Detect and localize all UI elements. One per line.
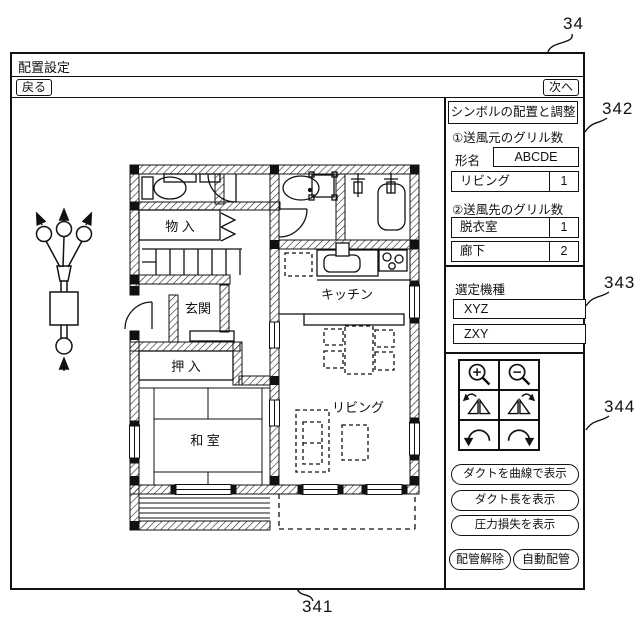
washing-machine bbox=[309, 172, 337, 200]
zoom-out-icon bbox=[500, 360, 538, 390]
window-title: 配置設定 bbox=[18, 57, 70, 76]
room-label-japanese-room: 和 室 bbox=[190, 433, 220, 448]
room-label-storage: 物 入 bbox=[165, 219, 195, 234]
dest-room-name: 廊下 bbox=[452, 242, 549, 261]
flip-right-button[interactable] bbox=[499, 390, 539, 420]
entrance-door-arc bbox=[125, 302, 152, 329]
panel-divider bbox=[446, 265, 583, 267]
dest-grill-row[interactable]: 廊下 2 bbox=[451, 241, 579, 262]
selected-models-title: 選定機種 bbox=[455, 279, 505, 298]
model-option[interactable]: ZXY bbox=[453, 324, 586, 344]
rotate-cw-icon bbox=[500, 420, 538, 450]
zoom-in-button[interactable] bbox=[459, 360, 499, 390]
room-label-closet: 押 入 bbox=[171, 359, 201, 374]
model-name-field[interactable]: ABCDE bbox=[493, 147, 579, 167]
stairs bbox=[142, 249, 242, 275]
terrace-dashed bbox=[279, 494, 415, 529]
top-cabinet bbox=[164, 174, 196, 182]
source-grill-row[interactable]: リビング 1 bbox=[451, 171, 579, 192]
release-piping-button[interactable]: 配管解除 bbox=[449, 549, 511, 570]
source-grills-title: ①送風元のグリル数 bbox=[452, 127, 563, 146]
toolbar: 戻る 次へ bbox=[12, 78, 583, 98]
rotate-ccw-button[interactable] bbox=[459, 420, 499, 450]
dest-grills-title: ②送風先のグリル数 bbox=[452, 199, 563, 218]
auto-piping-button[interactable]: 自動配管 bbox=[513, 549, 579, 570]
ref-label-341: 341 bbox=[302, 597, 333, 617]
symbol-panel: シンボルの配置と調整 ①送風元のグリル数 形名 ABCDE リビング 1 ②送風… bbox=[444, 98, 583, 588]
stove bbox=[379, 250, 407, 271]
view-tool-grid bbox=[458, 359, 540, 451]
washroom-door-arc bbox=[279, 209, 307, 237]
panel-divider bbox=[446, 352, 583, 354]
show-duct-length-button[interactable]: ダクト長を表示 bbox=[451, 490, 579, 511]
title-bar: 配置設定 bbox=[12, 54, 583, 77]
rotate-ccw-icon bbox=[460, 420, 498, 450]
zoom-out-button[interactable] bbox=[499, 360, 539, 390]
placement-settings-window: 配置設定 戻る 次へ bbox=[10, 52, 585, 590]
zoom-in-icon bbox=[460, 360, 498, 390]
ref-label-343: 343 bbox=[604, 273, 635, 293]
flip-horizontal-cw-icon bbox=[500, 390, 538, 420]
source-grill-count[interactable]: 1 bbox=[549, 172, 578, 191]
dining-set-dashed bbox=[324, 326, 394, 374]
flip-left-button[interactable] bbox=[459, 390, 499, 420]
model-name-label: 形名 bbox=[455, 150, 480, 169]
back-button[interactable]: 戻る bbox=[16, 79, 52, 96]
room-label-kitchen: キッチン bbox=[321, 287, 373, 302]
dest-room-name: 脱衣室 bbox=[452, 218, 549, 237]
floorplan-canvas[interactable]: 物 入 玄関 押 入 和 室 キッチン リビング bbox=[13, 98, 445, 587]
duct-symbol[interactable] bbox=[37, 210, 92, 371]
dest-grill-row[interactable]: 脱衣室 1 bbox=[451, 217, 579, 238]
dest-grill-count[interactable]: 1 bbox=[549, 218, 578, 237]
dest-grill-count[interactable]: 2 bbox=[549, 242, 578, 261]
room-label-living: リビング bbox=[332, 400, 384, 415]
refrigerator-dashed bbox=[285, 253, 312, 276]
panel-header: シンボルの配置と調整 bbox=[448, 101, 578, 124]
kitchen-counter bbox=[279, 314, 404, 325]
bathtub bbox=[351, 173, 405, 230]
ref-label-34: 34 bbox=[563, 14, 584, 34]
show-duct-curve-button[interactable]: ダクトを曲線で表示 bbox=[451, 464, 579, 485]
flip-horizontal-ccw-icon bbox=[460, 390, 498, 420]
model-option[interactable]: XYZ bbox=[453, 299, 586, 319]
ref-label-342: 342 bbox=[602, 99, 633, 119]
next-button[interactable]: 次へ bbox=[543, 79, 579, 96]
ref-label-344: 344 bbox=[604, 397, 635, 417]
veranda-lines bbox=[139, 498, 270, 518]
rotate-cw-button[interactable] bbox=[499, 420, 539, 450]
floorplan-drawing: 物 入 玄関 押 入 和 室 キッチン リビング bbox=[13, 98, 445, 587]
room-label-entrance: 玄関 bbox=[185, 301, 211, 316]
sofa-set-dashed bbox=[296, 410, 368, 472]
source-room-name: リビング bbox=[452, 172, 549, 191]
show-pressure-loss-button[interactable]: 圧力損失を表示 bbox=[451, 515, 579, 536]
